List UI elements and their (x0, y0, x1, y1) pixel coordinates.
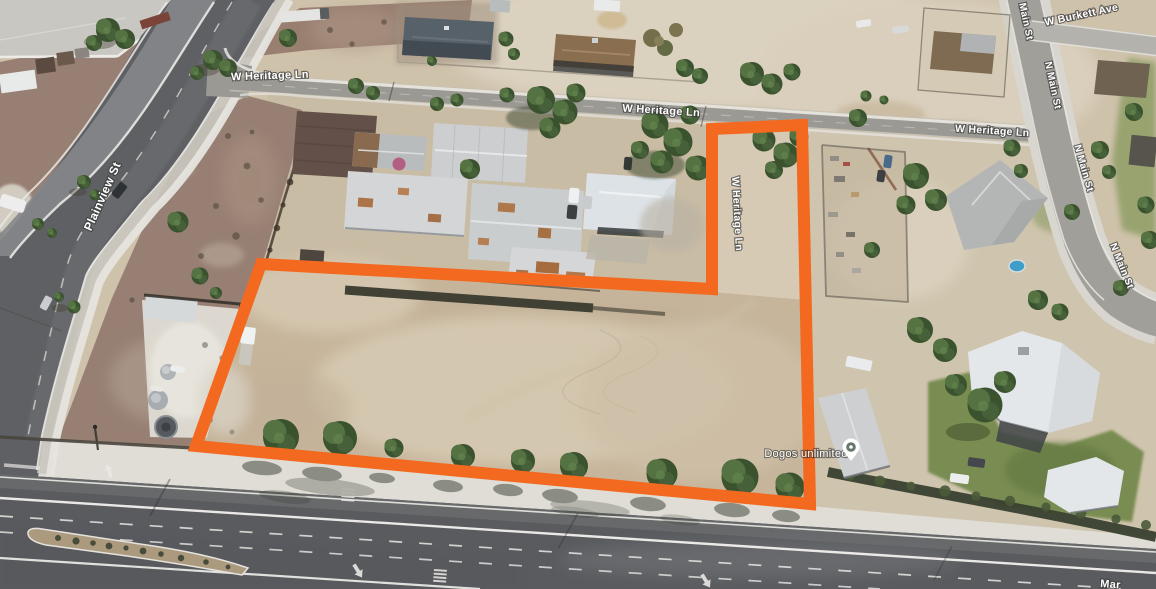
svg-text:Dogos unlimited: Dogos unlimited (764, 448, 847, 460)
svg-text:Mar: Mar (1100, 578, 1122, 589)
